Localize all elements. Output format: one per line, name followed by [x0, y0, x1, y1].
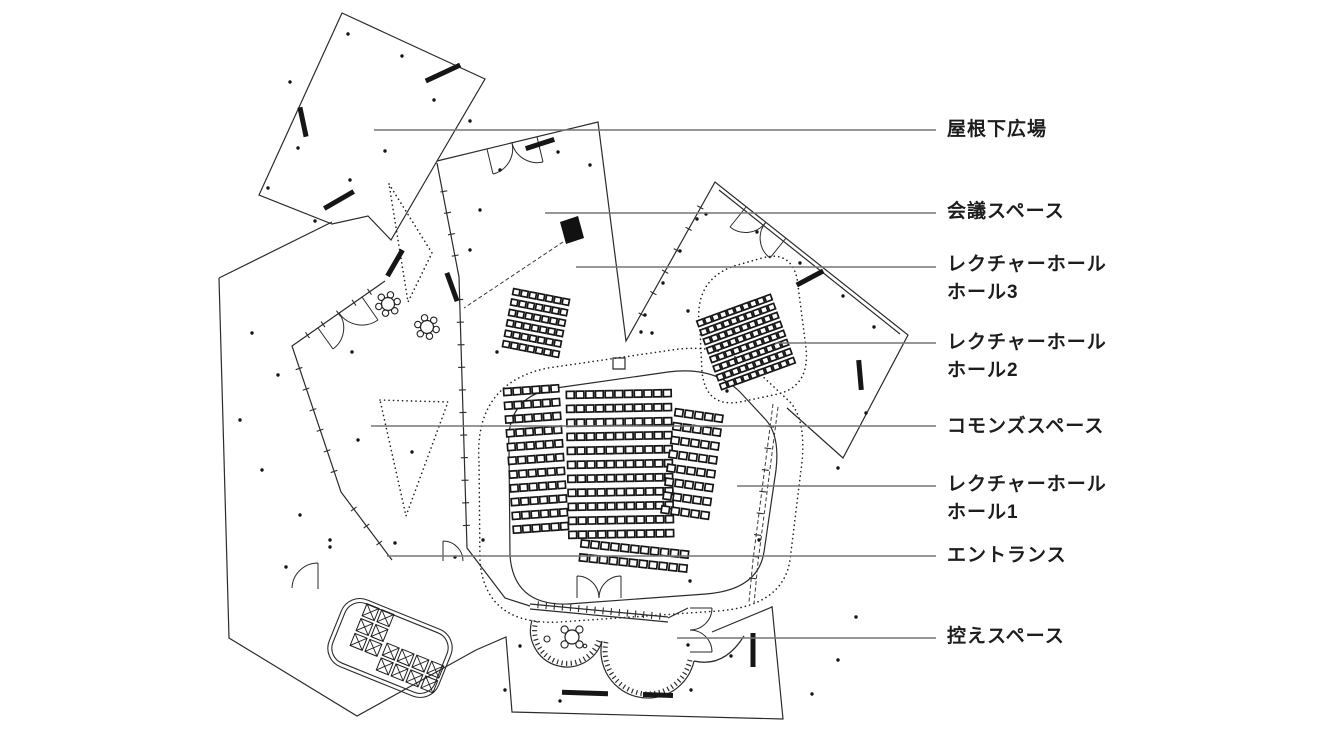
dotted-boundary — [389, 184, 432, 302]
hall1-seats-center — [566, 390, 673, 539]
label-text: エントランス — [947, 542, 1067, 570]
dotted-boundary — [380, 400, 448, 516]
label-text: レクチャーホール — [947, 251, 1107, 279]
wall-outline — [259, 13, 485, 240]
door-arc-icon — [443, 541, 463, 561]
dashed-wall — [749, 404, 773, 602]
wall-ticks — [351, 507, 382, 545]
bench-icon — [447, 273, 457, 301]
label-text: レクチャーホール — [947, 471, 1107, 499]
commons-space-label: コモンズスペース — [947, 413, 1104, 441]
lecture-hall2-label: レクチャーホール ホール2 — [947, 329, 1107, 385]
wall-outline — [694, 636, 744, 662]
wall-outline — [668, 607, 772, 632]
floor-plan-drawing — [0, 0, 1333, 732]
waiting-space-label: 控えスペース — [947, 623, 1065, 651]
dashed-wall — [754, 407, 778, 604]
lecture-hall1-label: レクチャーホール ホール1 — [947, 471, 1107, 527]
lecture-hall3-label: レクチャーホール ホール3 — [947, 251, 1107, 307]
wall-outline — [613, 358, 625, 369]
stool-icon — [583, 644, 587, 648]
label-text: レクチャーホール — [947, 329, 1107, 357]
stool-icon — [544, 636, 550, 642]
wall-ticks — [305, 289, 371, 338]
door-arc-icon — [577, 576, 599, 598]
bench-icon — [797, 271, 823, 285]
scallop-hatch — [605, 642, 690, 694]
label-text: ホール2 — [947, 357, 1107, 385]
bench-icon — [859, 360, 862, 390]
bench-icon — [388, 250, 403, 276]
bench-icon — [562, 692, 608, 694]
meeting-space-marker — [560, 216, 584, 244]
door-arc-icon — [599, 576, 621, 598]
table-with-chairs-icon — [415, 315, 440, 340]
wall-ticks — [456, 299, 470, 525]
wall-ticks — [440, 191, 458, 256]
bench-icon — [643, 694, 673, 695]
wall-outline — [719, 190, 900, 334]
hall1-seats-left — [503, 385, 568, 533]
door-arc-icon — [690, 608, 712, 630]
table-with-chairs-icon — [561, 626, 583, 648]
bench-icon — [526, 139, 555, 148]
meeting-space-label: 会議スペース — [947, 198, 1065, 226]
wall-outline — [530, 604, 668, 622]
bench-icon — [426, 65, 460, 81]
door-arc-icon — [292, 563, 318, 589]
label-text: ホール1 — [947, 499, 1107, 527]
door-arc-icon — [690, 630, 712, 652]
bench-icon — [300, 107, 306, 136]
door-arc-icon — [339, 297, 378, 325]
restroom-block — [322, 593, 458, 704]
floor-plan-page: 屋根下広場 会議スペース レクチャーホール ホール3 レクチャーホール ホール2… — [0, 0, 1333, 732]
entrance-label: エントランス — [947, 542, 1067, 570]
label-text: 屋根下広場 — [947, 116, 1047, 144]
door-arc-icon — [730, 207, 766, 232]
label-text: 会議スペース — [947, 198, 1065, 226]
hall2-seats — [697, 294, 796, 389]
table-with-chairs-icon — [376, 292, 401, 317]
bench-icon — [324, 192, 353, 209]
roof-plaza-label: 屋根下広場 — [947, 116, 1047, 144]
label-text: 控えスペース — [947, 623, 1065, 651]
wall-outline — [292, 281, 392, 560]
scallop-wall — [530, 620, 602, 667]
label-text: コモンズスペース — [947, 413, 1104, 441]
hall3-seats — [502, 289, 569, 358]
wall-outline — [219, 222, 332, 278]
scallop-wall — [601, 641, 694, 698]
restroom-stalls — [350, 604, 394, 657]
label-text: ホール3 — [947, 279, 1107, 307]
